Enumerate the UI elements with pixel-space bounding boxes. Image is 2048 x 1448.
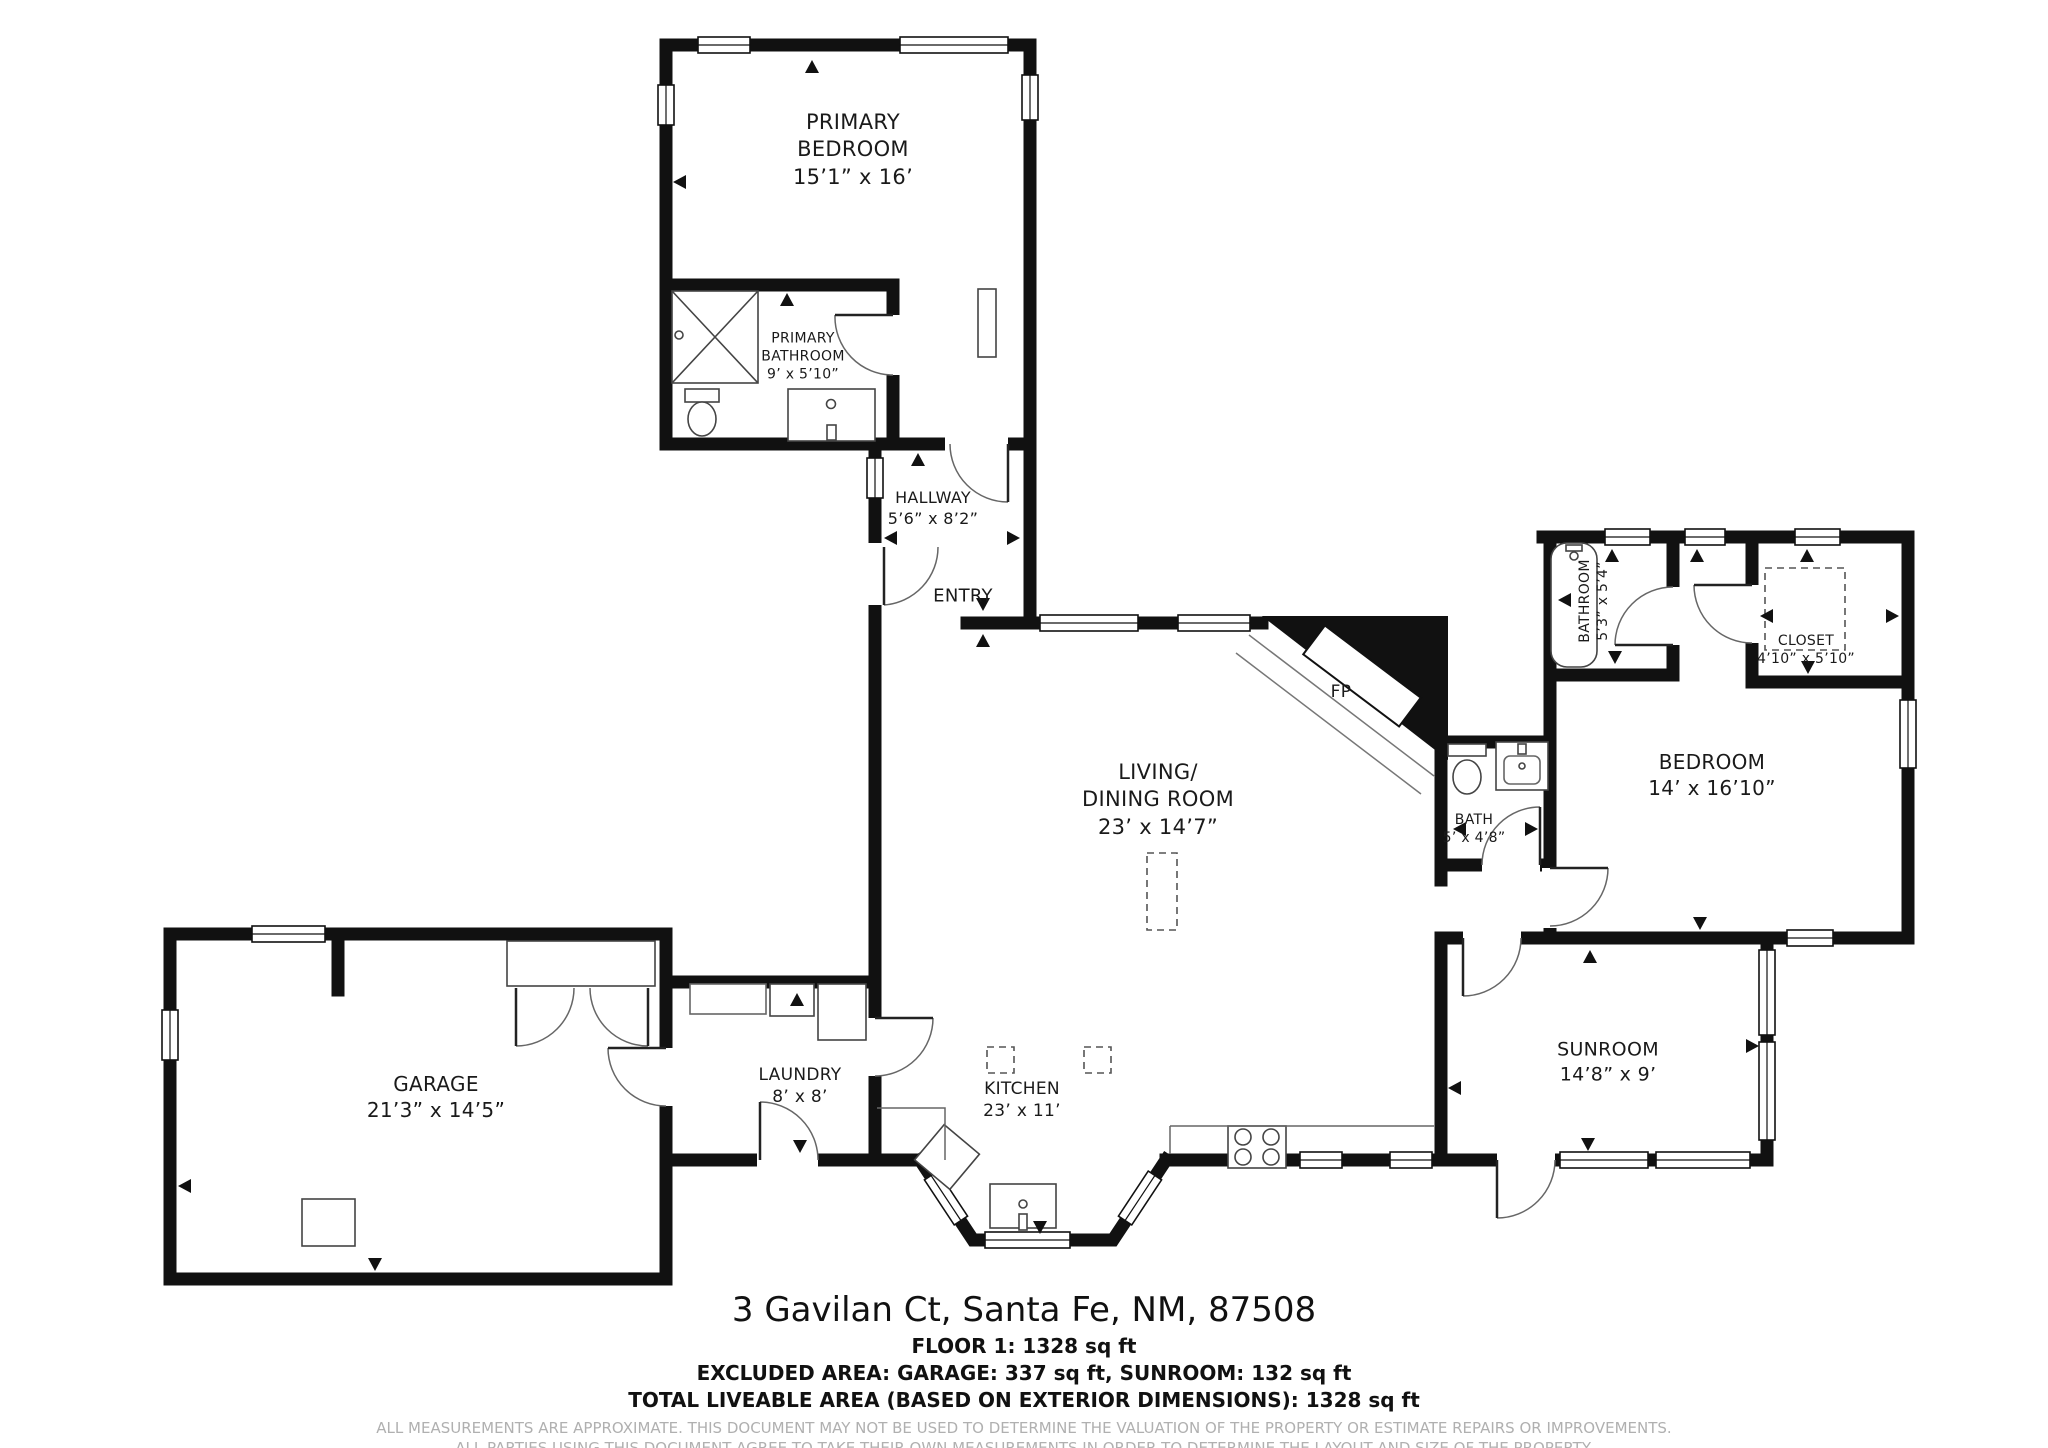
sink-bath — [1496, 742, 1548, 790]
room-label-bath: BATH 5’ x 4’8” — [1443, 811, 1506, 847]
dryer — [818, 984, 866, 1040]
room-label-garage: GARAGE 21’3” x 14’5” — [367, 1071, 505, 1123]
fireplace — [1236, 616, 1448, 794]
skylight-dashed — [987, 1047, 1014, 1073]
floorplan-drawing — [0, 0, 2048, 1448]
room-label-living-dining: LIVING/ DINING ROOM 23’ x 14’7” — [1082, 759, 1234, 841]
kitchen-sink — [990, 1184, 1056, 1230]
room-label-closet: CLOSET 4’10” x 5’10” — [1757, 632, 1855, 668]
property-address: 3 Gavilan Ct, Santa Fe, NM, 87508 — [0, 1290, 2048, 1330]
pocket-jamb — [978, 289, 996, 357]
washer — [770, 984, 814, 1016]
room-label-kitchen: KITCHEN 23’ x 11’ — [983, 1078, 1061, 1122]
floorplan-page: PRIMARY BEDROOM 15’1” x 16’ PRIMARY BATH… — [0, 0, 2048, 1448]
vanity-sink-primary — [788, 389, 875, 441]
excluded-area: EXCLUDED AREA: GARAGE: 337 sq ft, SUNROO… — [0, 1361, 2048, 1385]
room-label-sunroom: SUNROOM 14’8” x 9’ — [1557, 1037, 1659, 1086]
toilet-primary — [685, 389, 719, 436]
skylight-dashed — [1147, 853, 1177, 930]
fireplace-label: FP — [1331, 681, 1352, 703]
room-label-bathroom: BATHROOM 5’3” x 5’4” — [1576, 559, 1612, 642]
shower — [672, 291, 758, 383]
disclaimer-line-1: ALL MEASUREMENTS ARE APPROXIMATE. THIS D… — [0, 1419, 2048, 1437]
storage-cabinet — [507, 941, 655, 986]
footer: 3 Gavilan Ct, Santa Fe, NM, 87508 FLOOR … — [0, 1290, 2048, 1448]
floor-area: FLOOR 1: 1328 sq ft — [0, 1334, 2048, 1358]
room-label-entry: ENTRY — [933, 584, 993, 607]
skylight-dashed — [1084, 1047, 1111, 1073]
room-label-primary-bathroom: PRIMARY BATHROOM 9’ x 5’10” — [761, 330, 844, 385]
stove — [1228, 1126, 1286, 1168]
disclaimer-line-2: ALL PARTIES USING THIS DOCUMENT AGREE TO… — [0, 1439, 2048, 1448]
room-label-hallway: HALLWAY 5’6” x 8’2” — [888, 488, 978, 530]
toilet-bath — [1448, 744, 1486, 794]
total-liveable-area: TOTAL LIVEABLE AREA (BASED ON EXTERIOR D… — [0, 1388, 2048, 1412]
room-label-primary-bedroom: PRIMARY BEDROOM 15’1” x 16’ — [793, 109, 913, 191]
room-label-laundry: LAUNDRY 8’ x 8’ — [759, 1064, 842, 1108]
laundry-counter — [690, 984, 766, 1014]
utility-box — [302, 1199, 355, 1246]
room-label-bedroom: BEDROOM 14’ x 16’10” — [1648, 749, 1776, 801]
